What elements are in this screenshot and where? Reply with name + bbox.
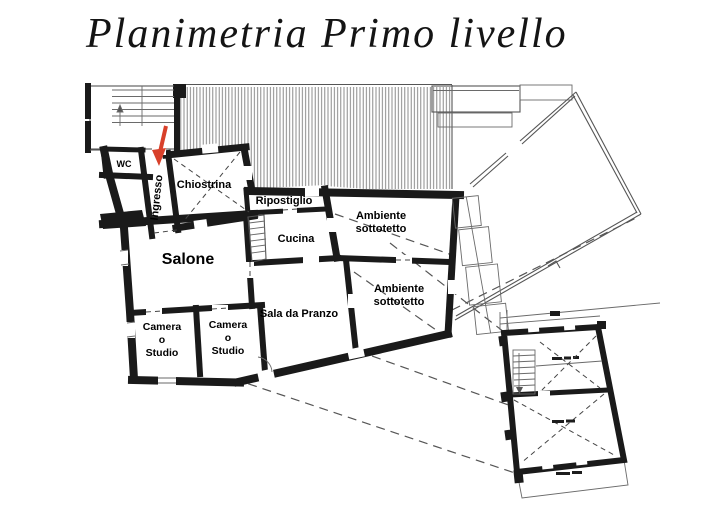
label-cucina: Cucina (278, 233, 316, 245)
svg-text:Ambiente: Ambiente (374, 283, 424, 295)
micro-text-mark-strip (556, 471, 582, 475)
adjacent-structure-outline (432, 85, 641, 336)
label-wc: WC (117, 159, 132, 169)
label-ambiente-sottotetto-2: Ambiente sottotetto (374, 283, 425, 308)
svg-text:sottotetto: sottotetto (356, 223, 407, 235)
svg-text:Studio: Studio (146, 347, 179, 359)
detached-stair-plan (498, 303, 660, 498)
svg-text:sottotetto: sottotetto (374, 296, 425, 308)
label-salone: Salone (162, 251, 215, 268)
svg-text:o: o (159, 334, 165, 346)
svg-text:Ambiente: Ambiente (356, 210, 406, 222)
svg-text:Studio: Studio (212, 345, 245, 357)
svg-text:Camera: Camera (209, 319, 248, 331)
floor-plan-canvas: WC Ingresso Chiostrina Ripostiglio Cucin… (0, 0, 705, 517)
label-sala-da-pranzo: Sala da Pranzo (260, 308, 339, 320)
svg-text:o: o (225, 332, 231, 344)
label-ambiente-sottotetto-1: Ambiente sottotetto (356, 210, 407, 235)
label-ripostiglio: Ripostiglio (256, 195, 313, 207)
label-chiostrina: Chiostrina (177, 179, 232, 191)
svg-text:Camera: Camera (143, 321, 182, 333)
micro-text-mark-lower (552, 420, 575, 424)
slide: Planimetria Primo livello (0, 0, 705, 517)
